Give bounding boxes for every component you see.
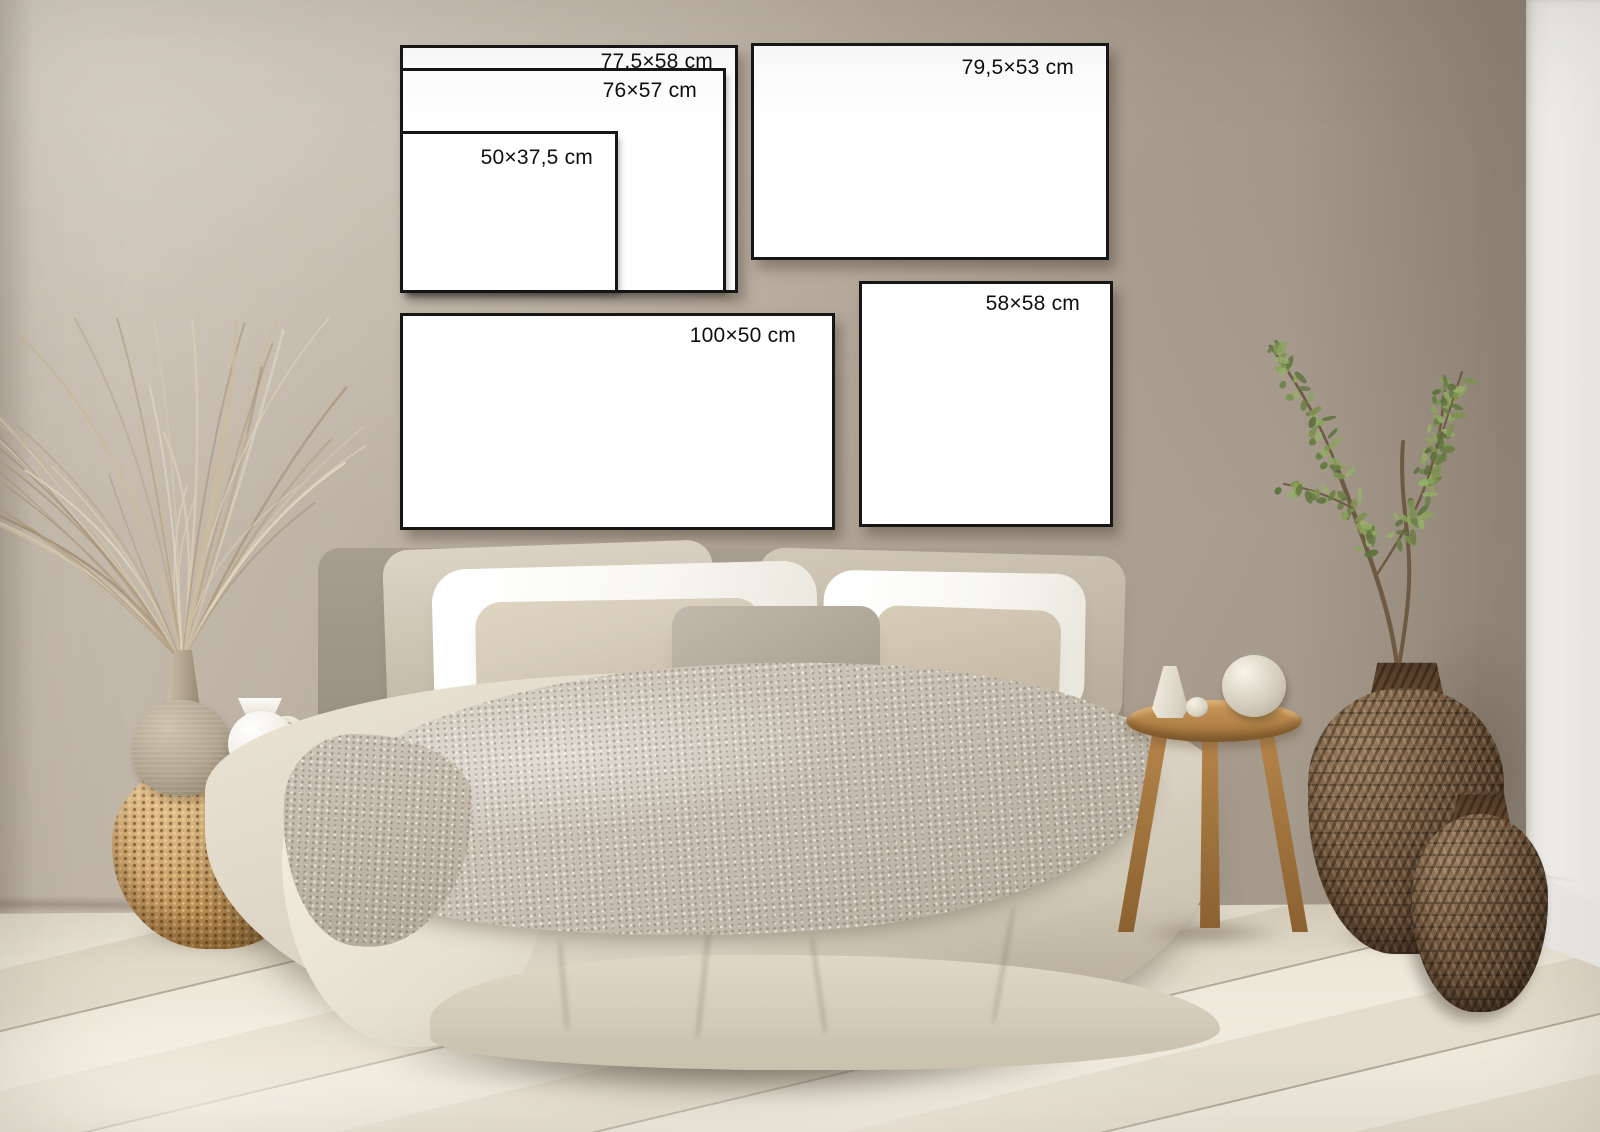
frame-50x37-5: 50×37,5 cm: [400, 131, 618, 293]
frame-size-label: 79,5×53 cm: [962, 56, 1074, 79]
bedroom-scene: 77,5×58 cm 76×57 cm 50×37,5 cm 79,5×53 c…: [0, 0, 1600, 1132]
woven-basket-vase-small: [1412, 788, 1548, 1012]
frame-size-label: 50×37,5 cm: [481, 146, 593, 169]
frame-79-5x53: 79,5×53 cm: [751, 43, 1109, 260]
pampas-grass: [0, 318, 370, 698]
frame-size-label: 100×50 cm: [690, 324, 796, 347]
frame-size-label: 76×57 cm: [603, 79, 697, 102]
branch-plant: [1150, 280, 1570, 710]
frame-58x58: 58×58 cm: [859, 281, 1113, 527]
frame-size-label: 58×58 cm: [986, 292, 1080, 315]
frame-100x50: 100×50 cm: [400, 313, 835, 530]
basket-body: [1412, 814, 1548, 1012]
stool-leg: [1200, 734, 1220, 928]
